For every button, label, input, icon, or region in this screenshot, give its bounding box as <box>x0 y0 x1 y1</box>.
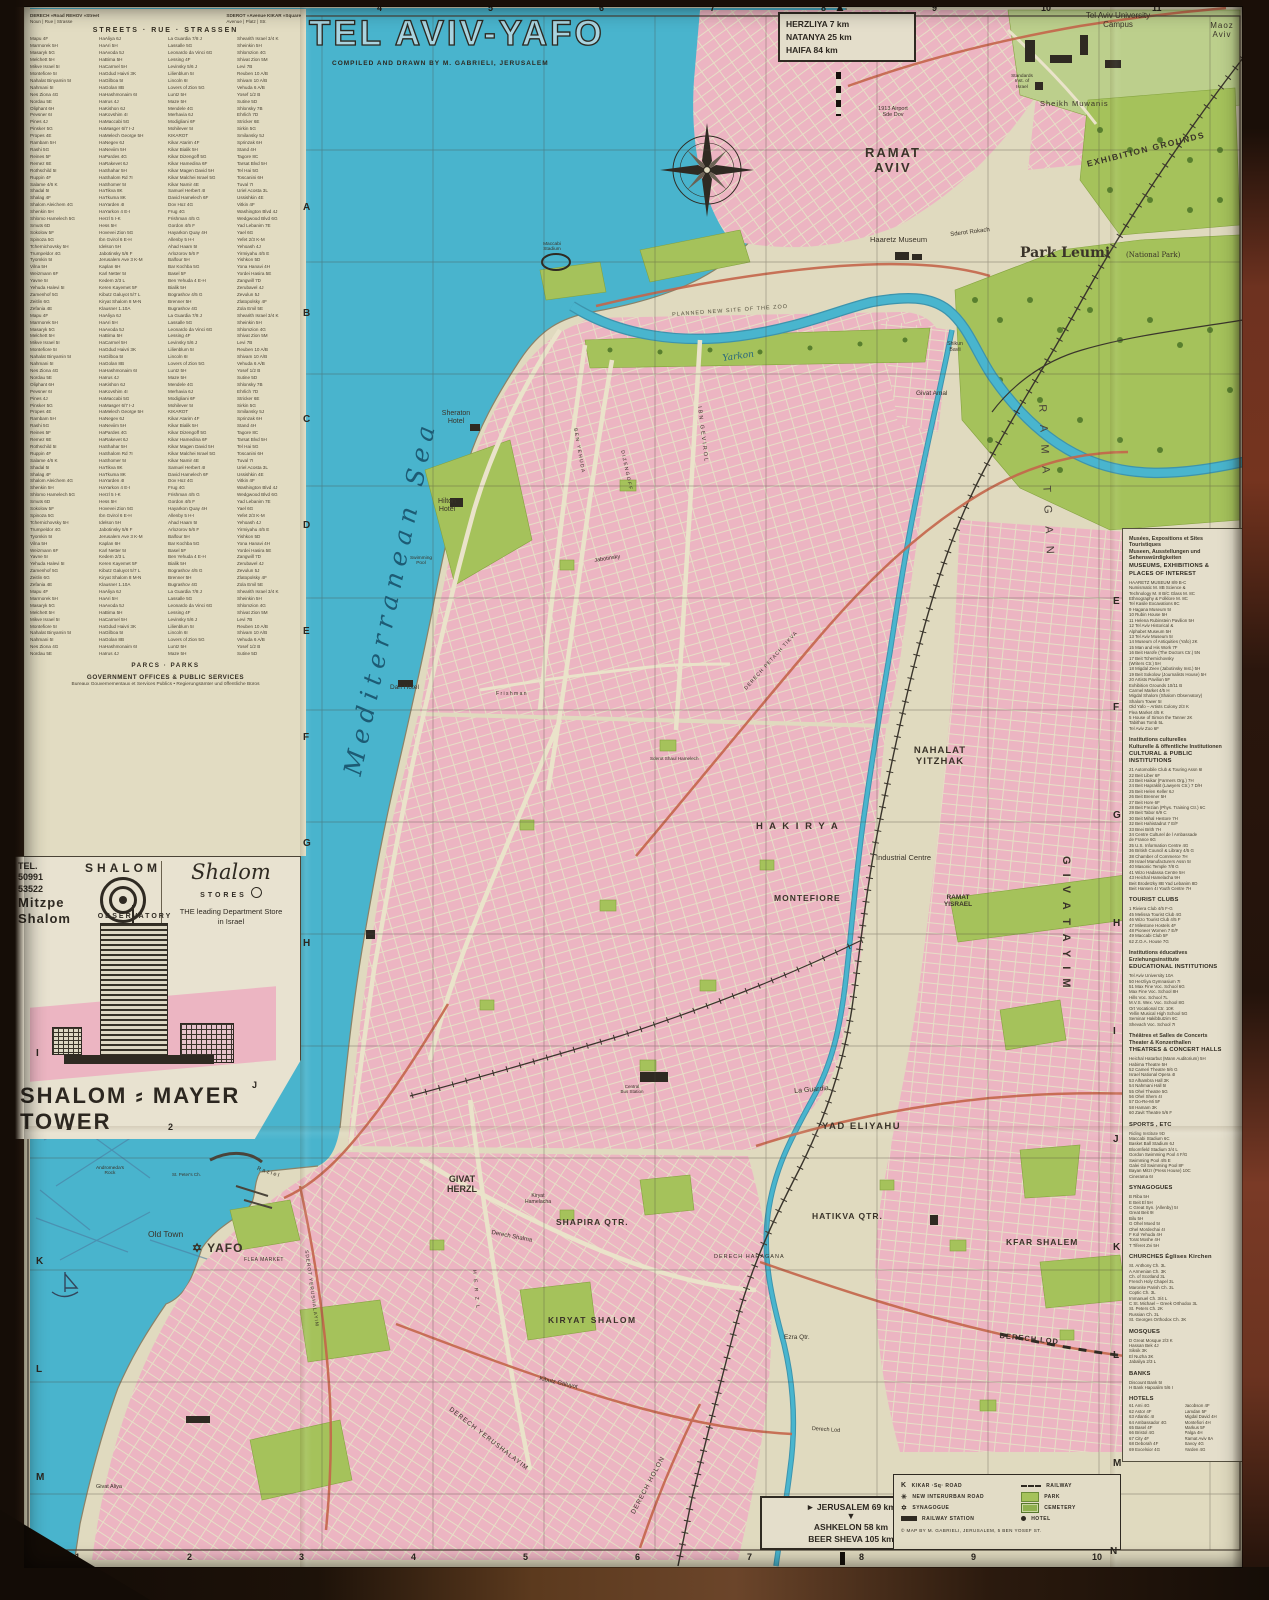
legend-section-tourist-clubs: TOURIST CLUBS1 Riviera Club 4/5 F-G45 Me… <box>1129 897 1236 944</box>
idx-cols-col-4: Shearith Israel 3/4 KSheinkin 5HShlomzio… <box>237 36 301 658</box>
legend-section-banks: BANKS Discount Bank 5IH Bank Hapoalim 5/… <box>1129 1371 1236 1391</box>
parks-header: PARCS · PARKS <box>30 662 301 669</box>
shalom-tower-inset: TEL. 50991 53522 Mitzpe Shalom SHALOM Sh… <box>12 856 301 1139</box>
index-header: STREETS · RUE · STRASSEN <box>30 27 301 34</box>
photograph-of-tel-aviv-map: TEL AVIV-YAFO COMPILED AND DRAWN BY M. G… <box>0 0 1269 1600</box>
photo-edge-right <box>1242 0 1269 1600</box>
globe-icon <box>251 887 262 898</box>
gov-subheader: Bureaux Gouvernementaux et Services Publ… <box>30 682 301 687</box>
legend-panel: Musées, Expositions et SitesTouristiques… <box>1122 528 1243 1462</box>
idx-cols-col-2: HaAliya 6JHaAri 5HHaAvoda 5JHaBima 5HHaC… <box>99 36 163 658</box>
legend-row-hotel: HOTEL <box>1021 1513 1113 1524</box>
street-index-columns: Mapu 4FMarmorek 5HMasaryk 5GMelchett 5HM… <box>30 36 301 658</box>
legend-row-kikar: KKIKAR ·Sq· ROAD <box>901 1480 1011 1491</box>
legend-section-museums-exhibitions-: Musées, Expositions et SitesTouristiques… <box>1129 536 1236 731</box>
idx-cols-col-3: La Guardia 7/8 JLassalle 5GLeonardo da V… <box>168 36 232 658</box>
street-index-panel: DERECH »Road REHOV »StreetNoun | Rue | S… <box>25 9 306 856</box>
legend-section-synagogues: SYNAGOGUESB Riba 5HE Beit El 5HC Great S… <box>1129 1185 1236 1248</box>
map-credit: © MAP BY M. GABRIELI, JERUSALEM, 5 BEN Y… <box>901 1528 1113 1533</box>
shalom-tower-drawing: OBSERVATORY <box>12 927 300 1085</box>
photo-edge-top <box>0 0 1269 7</box>
legend-section-churches-glises-kirchen: CHURCHES Églises Kirchen St. Anthony Ch.… <box>1129 1254 1236 1322</box>
hotel-symbol <box>1021 1516 1026 1521</box>
south-sign-post <box>840 1552 845 1565</box>
park-symbol <box>1021 1492 1039 1502</box>
distance-sign-north: HERZLIYA 7 kmNATANYA 25 kmHAIFA 84 km <box>778 12 916 62</box>
inset-caption: SHALOM ⸗ MAYER TOWER <box>20 1083 290 1135</box>
north-sign-post <box>836 72 841 116</box>
legend-section-mosques: MOSQUESD Great Mosque 2/3 K Hassan Bek 4… <box>1129 1329 1236 1365</box>
legend-section-cultural-public-institutions: Institutions culturellesKulturelle & öff… <box>1129 737 1236 891</box>
map-symbol-legend: KKIKAR ·Sq· ROAD✳NEW INTERURBAN ROAD✡SYN… <box>893 1474 1121 1550</box>
legend-row-railway: RAILWAY <box>1021 1480 1113 1491</box>
low-rise-left <box>52 1027 82 1055</box>
gov-header: GOVERNMENT OFFICES & PUBLIC SERVICES <box>30 674 301 681</box>
legend-row-cemetery: CEMETERY <box>1021 1502 1113 1513</box>
station-symbol <box>901 1516 917 1521</box>
photo-edge-bottom <box>0 1567 1269 1600</box>
legend-row-station: RAILWAY STATION <box>901 1513 1011 1524</box>
synagogue-symbol: ✡ <box>901 1504 907 1512</box>
legend-section-educational-institutions: Institutions éducativesErziehungsinstitu… <box>1129 950 1236 1027</box>
legend-section-theatres-concert-halls: Théâtres et Salles de ConcertsTheater & … <box>1129 1033 1236 1115</box>
map-title: TEL AVIV-YAFO <box>309 14 605 54</box>
shalom-tel-block: TEL. 50991 53522 Mitzpe Shalom <box>18 861 71 927</box>
index-abbreviations: DERECH »Road REHOV »StreetNoun | Rue | S… <box>30 13 301 24</box>
legend-row-interurban: ✳NEW INTERURBAN ROAD <box>901 1491 1011 1502</box>
map-subtitle: COMPILED AND DRAWN BY M. GABRIELI, JERUS… <box>332 60 549 67</box>
interurban-symbol: ✳ <box>901 1493 907 1501</box>
idx-cols-col-1: Mapu 4FMarmorek 5HMasaryk 5GMelchett 5HM… <box>30 36 94 658</box>
tower-body <box>100 923 168 1057</box>
photo-edge-left <box>0 0 25 1600</box>
legend-section-sports-etc: SPORTS , ETC Riding Institute 9D Maccabi… <box>1129 1122 1236 1180</box>
railway-symbol <box>1021 1485 1041 1487</box>
kikar-symbol: K <box>901 1482 907 1489</box>
cemetery-symbol <box>1021 1503 1039 1513</box>
legend-row-synagogue: ✡SYNAGOGUE <box>901 1502 1011 1513</box>
legend-row-park: PARK <box>1021 1491 1113 1502</box>
legend-section-hotels: HOTELS61 Ami 4G62 Astor 4F63 Atlantic 4I… <box>1129 1396 1236 1452</box>
